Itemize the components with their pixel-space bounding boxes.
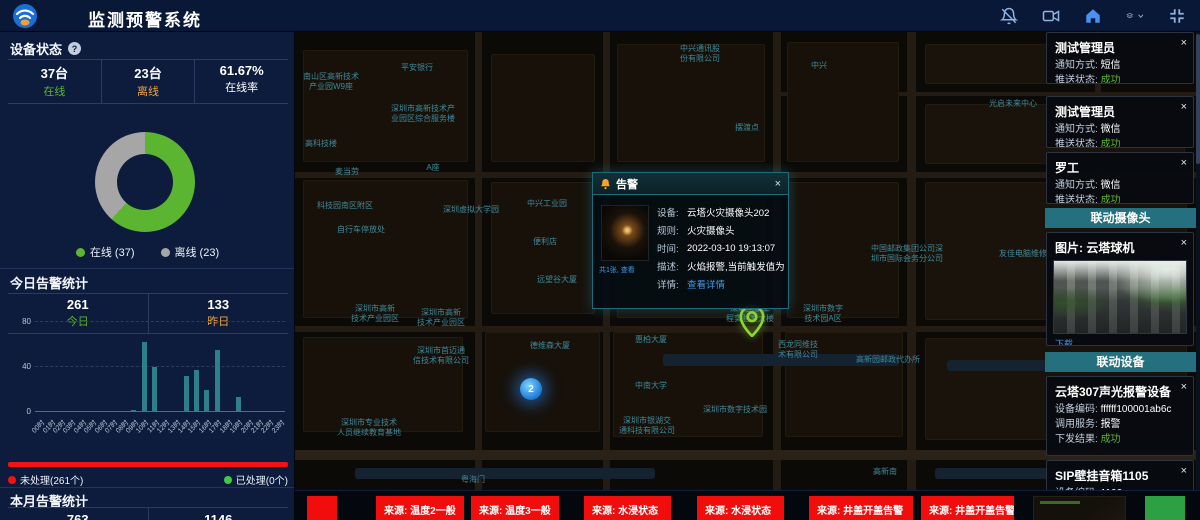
map-label: 南山区高新技术 产业园W9座: [303, 72, 359, 92]
close-icon[interactable]: ×: [1181, 381, 1187, 393]
section-divider: [0, 487, 295, 488]
green-thumbnail[interactable]: [1145, 496, 1185, 520]
y-tick-label: 40: [15, 362, 31, 371]
map-label: 中国邮政集团公司深 圳市国际会务分公司: [871, 244, 943, 264]
alert-box[interactable]: 来源: 井盖开盖告警: [921, 496, 1014, 520]
linked-devices-header: 联动设备: [1045, 352, 1196, 372]
device-status-title: 设备状态 ?: [10, 39, 81, 58]
map-pin-icon[interactable]: [739, 305, 765, 342]
fullscreen-icon[interactable]: [1168, 7, 1186, 25]
alarm-time-row: 时间:2022-03-10 19:13:07: [657, 239, 785, 257]
gridline: [35, 366, 285, 367]
app-logo-icon: [12, 3, 38, 29]
alert-box[interactable]: 来源: 温度2一般: [376, 496, 464, 520]
layer-switcher-icon[interactable]: [1126, 7, 1144, 25]
view-details-link[interactable]: 查看详情: [687, 277, 725, 291]
device-name: 云塔307声光报警设备: [1047, 377, 1193, 402]
notification-card: × 测试管理员 通知方式: 短信 推送状态: 成功: [1046, 32, 1194, 84]
stat-online-rate: 61.67% 在线率: [194, 60, 288, 103]
alarm-device-row: 设备:云塔火灾摄像头202: [657, 203, 785, 221]
map-label: 光启未来中心: [989, 99, 1037, 109]
download-link[interactable]: 下载: [1047, 334, 1081, 346]
map-label: 西龙同维技 术有限公司: [778, 340, 818, 360]
bar-chart-x-labels: 00时01时02时03时04时05时06时07时08时09时10时11时12时1…: [35, 416, 285, 450]
today-alarms-title: 今日告警统计: [10, 273, 88, 292]
bar: [236, 397, 241, 412]
notification-name: 测试管理员: [1047, 97, 1193, 122]
device-name: SIP壁挂音箱1105: [1047, 461, 1193, 486]
bar: [204, 390, 209, 413]
unprocessed-label: 未处理(261个): [8, 472, 83, 487]
donut-legend: 在线 (37) 离线 (23): [0, 244, 295, 260]
notification-name: 测试管理员: [1047, 33, 1193, 58]
map-label: 深圳市数字技术园: [703, 405, 767, 415]
gridline: [35, 321, 285, 322]
notification-method: 通知方式: 短信: [1047, 58, 1193, 73]
chevron-down-icon: [1137, 7, 1145, 25]
map-label: 摆渡点: [735, 123, 759, 133]
map-label: 中兴工业园: [527, 199, 567, 209]
map-label: 粤海门: [461, 475, 485, 485]
map-label: 高新园邮政代办所: [856, 355, 920, 365]
device-status-donut-chart: [95, 132, 195, 232]
notification-card: × 罗工 通知方式: 微信 推送状态: 成功: [1046, 152, 1194, 204]
bottom-alert-bar: 来源: 温度2一般 来源: 温度3一般 来源: 水浸状态 来源: 水浸状态 来源…: [295, 490, 1200, 520]
map-label: 德维森大厦: [530, 341, 570, 351]
device-status-stats: 37台 在线 23台 离线 61.67% 在线率: [8, 59, 288, 104]
map-building: [491, 54, 595, 162]
alert-box-partial[interactable]: [307, 496, 337, 520]
device-result-row: 下发结果: 成功: [1047, 432, 1193, 447]
unprocessed-progress-bar: [8, 462, 288, 467]
section-divider: [0, 268, 295, 269]
processed-dot: [224, 476, 232, 484]
close-icon[interactable]: ×: [1181, 37, 1187, 49]
camera-card-title: 图片: 云塔球机: [1047, 233, 1193, 258]
map-label: 深圳市首迈通 信技术有限公司: [413, 346, 469, 366]
notification-method: 通知方式: 微信: [1047, 178, 1193, 193]
notification-status: 推送状态: 成功: [1047, 193, 1193, 204]
bar: [152, 367, 157, 412]
map-label: 友佳电脑维修: [999, 249, 1047, 259]
close-icon[interactable]: ×: [1181, 157, 1187, 169]
map-label: A座: [426, 163, 439, 173]
video-thumbnail[interactable]: [1033, 496, 1126, 520]
map-label: 深圳市高新技术产 业园区综合服务楼: [391, 104, 455, 124]
map-label: 科技园南区附区: [317, 201, 373, 211]
left-panel: 设备状态 ? 37台 在线 23台 离线 61.67% 在线率 在线 (37) …: [0, 32, 295, 520]
close-icon[interactable]: ×: [1181, 101, 1187, 113]
stat-offline: 23台 离线: [101, 60, 195, 103]
map-label: 麦当劳: [335, 167, 359, 177]
map-label: 平安银行: [401, 63, 433, 73]
header: 监测预警系统: [0, 0, 1200, 32]
notification-bell-off-icon[interactable]: [1000, 7, 1018, 25]
alarm-rule-row: 规则:火灾摄像头: [657, 221, 785, 239]
map-building: [787, 42, 899, 162]
alert-box[interactable]: 来源: 井盖开盖告警: [809, 496, 913, 520]
device-code-row: 设备编码: ffffff100001ab6c: [1047, 402, 1193, 417]
alarm-detail-row: 详情:查看详情: [657, 275, 785, 293]
linked-cameras-header: 联动摄像头: [1045, 208, 1196, 228]
map-label: 高新南: [873, 467, 897, 477]
alarm-popup: 告警 × 共1张, 查看 设备:云塔火灾摄像头202 规则:火灾摄像头 时间:2…: [592, 172, 789, 309]
map-label: 自行车停放处: [337, 225, 385, 235]
notification-status: 推送状态: 成功: [1047, 73, 1193, 84]
alert-box[interactable]: 来源: 温度3一般: [471, 496, 559, 520]
map-label: 中兴通讯股 份有限公司: [680, 44, 720, 64]
notification-card: × 测试管理员 通知方式: 微信 推送状态: 成功: [1046, 96, 1194, 148]
map-label: 便利店: [533, 237, 557, 247]
legend-offline[interactable]: 离线 (23): [161, 244, 220, 260]
close-icon[interactable]: ×: [1181, 237, 1187, 249]
bar: [131, 410, 136, 412]
alarm-popup-title: 告警: [616, 176, 638, 192]
camera-card: × 图片: 云塔球机 下载: [1046, 232, 1194, 346]
camera-snapshot-image[interactable]: [1053, 260, 1187, 334]
map-road: [475, 32, 482, 490]
map-label: 深圳市高新 技术产业园区: [351, 304, 399, 324]
bar: [184, 376, 189, 412]
donut-hole: [117, 154, 173, 210]
video-camera-icon[interactable]: [1042, 7, 1060, 25]
close-icon[interactable]: ×: [775, 178, 781, 190]
map-label: 深圳市数字 技术园A区: [803, 304, 843, 324]
map-label: 惠柏大厦: [635, 335, 667, 345]
legend-online[interactable]: 在线 (37): [76, 244, 135, 260]
y-tick-label: 0: [15, 407, 31, 416]
map-label: 中南大学: [635, 381, 667, 391]
map-label: 中兴: [811, 61, 827, 71]
alarm-details: 设备:云塔火灾摄像头202 规则:火灾摄像头 时间:2022-03-10 19:…: [657, 203, 785, 293]
bar: [194, 370, 199, 412]
device-service-row: 调用服务: 报警: [1047, 417, 1193, 432]
map-label: 高科技楼: [305, 139, 337, 149]
bar: [215, 350, 220, 412]
map-label: 深圳市专业技术 人员继续教育基地: [337, 418, 401, 438]
scrollbar-thumb[interactable]: [1196, 34, 1200, 164]
x-axis-line: [35, 411, 285, 412]
help-icon[interactable]: ?: [68, 42, 81, 55]
month-value-1: 763: [8, 508, 148, 520]
alert-box[interactable]: 来源: 水浸状态: [697, 496, 784, 520]
processed-legend-row: 未处理(261个) 已处理(0个): [8, 472, 288, 487]
processed-label: 已处理(0个): [224, 472, 288, 487]
unprocessed-dot: [8, 476, 16, 484]
notification-method: 通知方式: 微信: [1047, 122, 1193, 137]
legend-dot-offline: [161, 248, 170, 257]
map-label: 深圳虚拟大学园: [443, 205, 499, 215]
alarm-popup-header: 告警 ×: [593, 173, 788, 195]
y-tick-label: 80: [15, 317, 31, 326]
map-label: 远望谷大厦: [537, 275, 577, 285]
home-icon[interactable]: [1084, 7, 1102, 25]
map-cluster-marker[interactable]: 2: [520, 378, 542, 400]
close-icon[interactable]: ×: [1181, 465, 1187, 477]
alarm-snapshot-image[interactable]: [601, 205, 649, 261]
page-title: 监测预警系统: [88, 6, 202, 31]
stat-online: 37台 在线: [8, 60, 101, 103]
alarm-photo-count-link[interactable]: 共1张, 查看: [599, 265, 653, 275]
month-alarms-stats: 763 1146: [8, 507, 288, 520]
hourly-bar-chart: 04080: [35, 322, 285, 412]
bar: [142, 342, 147, 412]
map-strip: [355, 468, 655, 479]
header-toolbar: [1000, 0, 1186, 32]
notification-status: 推送状态: 成功: [1047, 137, 1193, 148]
legend-dot-online: [76, 248, 85, 257]
map-label: 深圳市银湖交 通科技有限公司: [619, 416, 675, 436]
map-label: 深圳市高新 技术产业园区: [417, 308, 465, 328]
alarm-bell-icon: [600, 178, 611, 190]
alarm-desc-row: 描述:火焰报警,当前触发值为...: [657, 257, 785, 275]
scrollbar[interactable]: [1196, 32, 1200, 490]
month-value-2: 1146: [148, 508, 289, 520]
linked-device-card: × 云塔307声光报警设备 设备编码: ffffff100001ab6c 调用服…: [1046, 376, 1194, 456]
alert-box[interactable]: 来源: 水浸状态: [584, 496, 671, 520]
notification-name: 罗工: [1047, 153, 1193, 178]
